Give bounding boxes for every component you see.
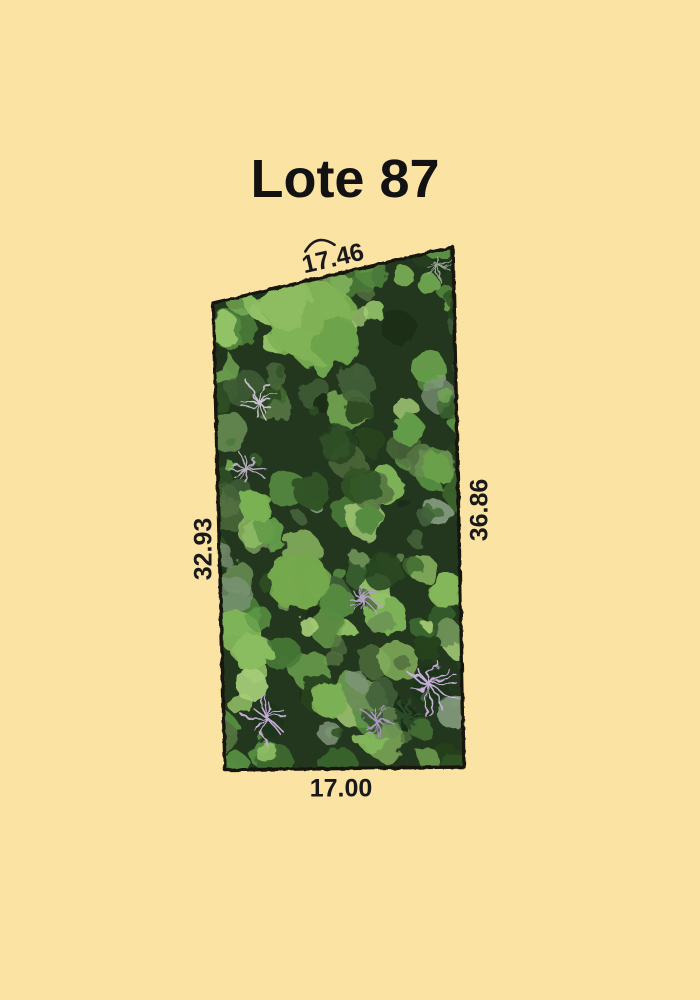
measurement-bottom-value: 17.00 bbox=[310, 775, 373, 803]
aerial-photo-clip-group bbox=[189, 223, 486, 793]
measurement-bottom: 17.00 bbox=[310, 777, 373, 802]
site-plan: Lote 87 17.46 32.93 bbox=[0, 0, 700, 1000]
measurement-left: 32.93 bbox=[192, 518, 217, 581]
measurement-right-value: 36.86 bbox=[466, 479, 494, 542]
measurement-right: 36.86 bbox=[468, 479, 493, 542]
measurement-left-value: 32.93 bbox=[190, 518, 218, 581]
lot-aerial-photo bbox=[0, 0, 700, 1000]
